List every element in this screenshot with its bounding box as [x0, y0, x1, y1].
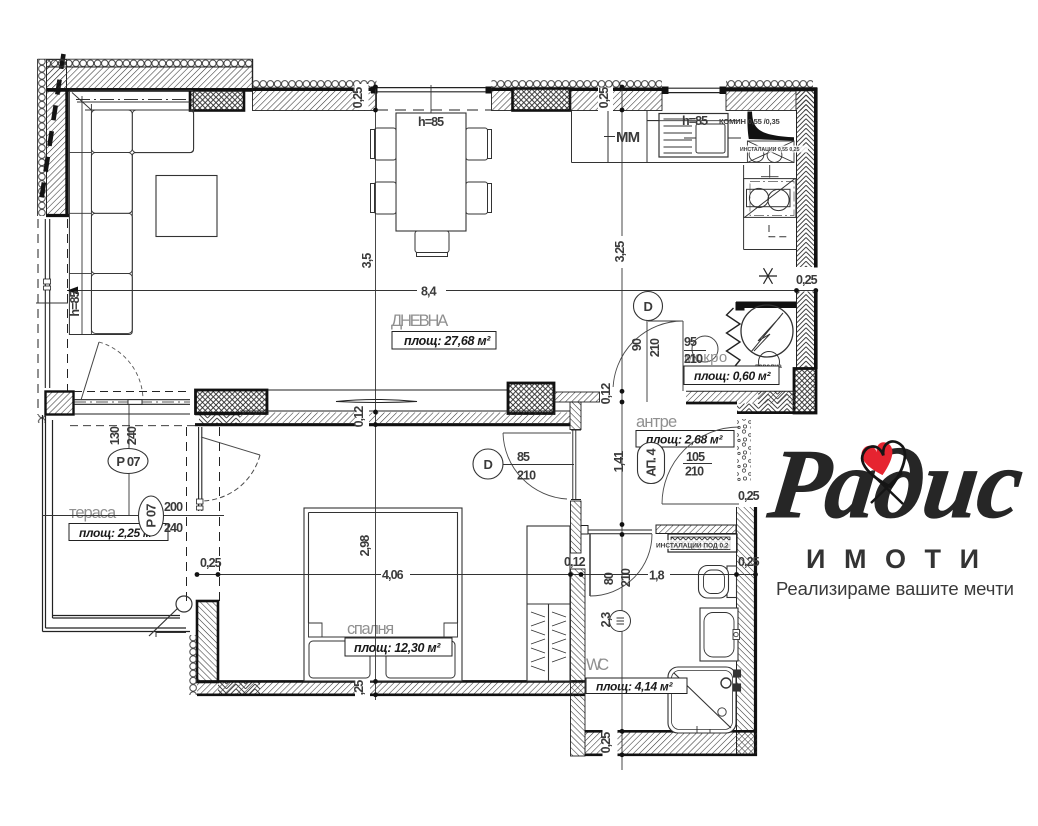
svg-text:210: 210	[684, 352, 703, 366]
svg-text:2,98: 2,98	[358, 535, 372, 557]
svg-text:ИМОТИ: ИМОТИ	[806, 544, 992, 574]
svg-text:Р 07: Р 07	[144, 504, 159, 528]
svg-text:антре: антре	[636, 413, 677, 431]
svg-text:WC: WC	[586, 656, 609, 674]
svg-text:D: D	[644, 299, 653, 314]
svg-text:8,4: 8,4	[421, 285, 437, 299]
svg-text:h=85: h=85	[418, 115, 444, 129]
svg-text:площ: 12,30 м²: площ: 12,30 м²	[354, 641, 441, 655]
svg-text:85: 85	[517, 450, 530, 464]
svg-text:0,25: 0,25	[597, 87, 611, 109]
svg-text:D: D	[484, 457, 493, 472]
svg-text:0,25: 0,25	[738, 555, 760, 569]
svg-text:0,25: 0,25	[738, 489, 760, 503]
svg-text:площ: 0,60 м²: площ: 0,60 м²	[694, 369, 771, 383]
svg-text:105: 105	[686, 450, 705, 464]
svg-text:4,06: 4,06	[382, 568, 404, 582]
svg-text:Реализираме вашите мечти: Реализираме вашите мечти	[776, 578, 1014, 599]
svg-text:ИНСТАЛАЦИИ 0,55 0,25: ИНСТАЛАЦИИ 0,55 0,25	[740, 147, 800, 153]
svg-text:КОМИН 0,55 /0,35: КОМИН 0,55 /0,35	[719, 117, 780, 126]
svg-text:90: 90	[630, 338, 644, 351]
svg-text:3,5: 3,5	[360, 253, 374, 269]
svg-text:0,12: 0,12	[564, 555, 586, 569]
svg-text:80: 80	[602, 572, 616, 585]
svg-text:0,12: 0,12	[352, 406, 366, 428]
svg-text:площ: 4,14 м²: площ: 4,14 м²	[596, 680, 673, 694]
svg-text:тераса: тераса	[69, 504, 117, 522]
svg-text:0,25: 0,25	[351, 87, 365, 109]
svg-text:0,25: 0,25	[796, 273, 818, 287]
svg-text:h=85: h=85	[68, 290, 82, 316]
svg-text:200: 200	[164, 500, 183, 514]
svg-text:MM: MM	[616, 129, 640, 146]
svg-text:спалня: спалня	[347, 620, 394, 638]
svg-text:130: 130	[108, 426, 122, 445]
svg-text:,25: ,25	[352, 680, 366, 696]
svg-text:1,8: 1,8	[649, 569, 665, 583]
svg-text:ИНСТАЛАЦИИ ПОД 0,2: ИНСТАЛАЦИИ ПОД 0,2	[656, 543, 729, 550]
svg-text:площ: 27,68 м²: площ: 27,68 м²	[404, 334, 491, 348]
svg-text:h=85: h=85	[682, 114, 708, 128]
svg-text:0,25: 0,25	[599, 732, 613, 754]
svg-text:210: 210	[619, 568, 633, 587]
svg-text:240: 240	[164, 521, 183, 535]
svg-text:2,3: 2,3	[599, 612, 613, 628]
svg-text:0,25: 0,25	[200, 556, 222, 570]
svg-text:Р 07: Р 07	[116, 454, 140, 469]
svg-text:210: 210	[685, 465, 704, 479]
svg-text:ДНЕВНА: ДНЕВНА	[391, 312, 448, 330]
svg-text:0,12: 0,12	[599, 383, 613, 405]
svg-text:3,25: 3,25	[613, 241, 627, 263]
svg-text:1,41: 1,41	[612, 451, 626, 473]
svg-text:240: 240	[125, 426, 139, 445]
svg-text:АП. 4: АП. 4	[645, 448, 659, 476]
svg-text:210: 210	[517, 469, 536, 483]
svg-text:210: 210	[648, 338, 662, 357]
svg-text:Радис: Радис	[763, 429, 1029, 539]
svg-text:95: 95	[684, 335, 697, 349]
